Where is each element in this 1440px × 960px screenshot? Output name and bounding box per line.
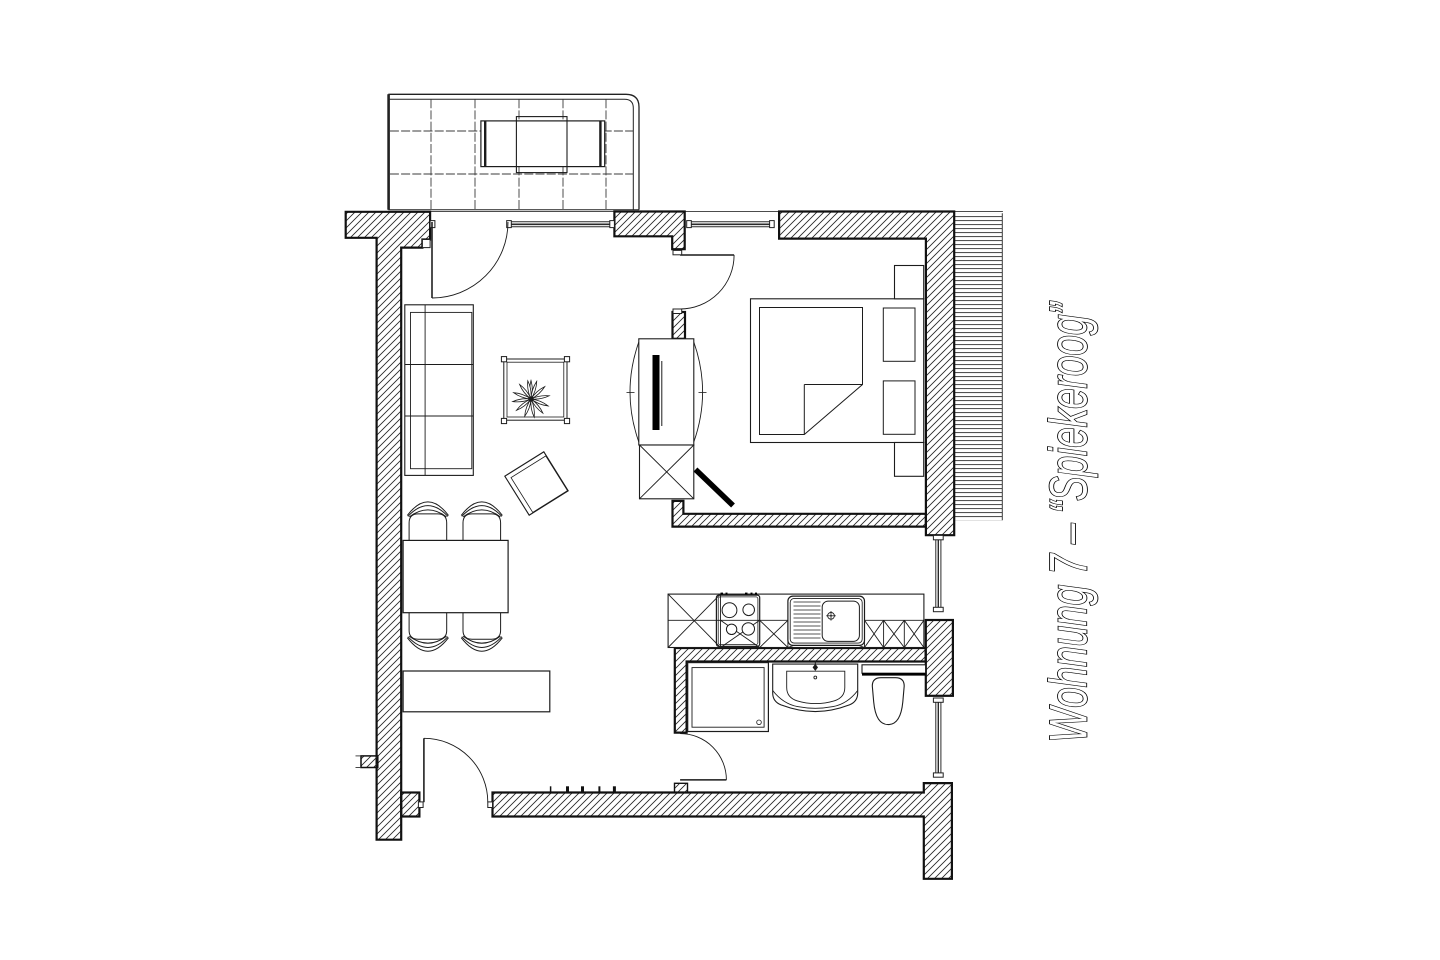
svg-text:Wohnung 7 – “Spiekeroog”: Wohnung 7 – “Spiekeroog” <box>1039 301 1098 743</box>
